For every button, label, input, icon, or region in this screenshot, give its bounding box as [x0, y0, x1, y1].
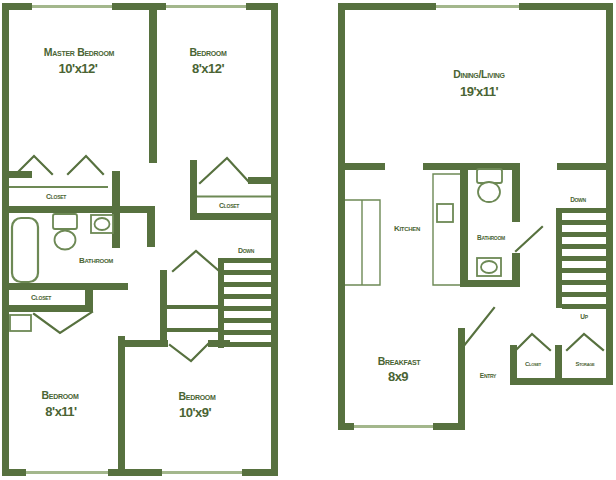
bedroom-2-dims: 8'x12' [192, 62, 224, 75]
bedroom-4-label: Bedroom [179, 391, 216, 402]
main-stairs-down-label: Down [570, 197, 586, 204]
hall-closet-shelf-box [10, 315, 31, 331]
sink-basin [95, 218, 110, 230]
bedroom-4-dims: 10'x9' [179, 406, 211, 419]
bedroom-3-dims: 8'x11' [45, 405, 76, 418]
toilet-bowl [478, 182, 500, 202]
sink-basin [481, 261, 497, 273]
upper-bathroom-fixtures [12, 214, 113, 282]
bedroom-3-label: Bedroom [42, 390, 79, 401]
breakfast-label: Breakfast [378, 356, 421, 367]
master-bedroom-label: Master Bedroom [44, 47, 114, 58]
upper-outer-walls [2, 3, 278, 476]
breakfast-dims: 8x9 [388, 370, 408, 383]
entry-label: Entry [480, 373, 496, 380]
dining-living-dims: 19'x11' [460, 85, 498, 98]
hall-closet-label: Closet [31, 294, 51, 301]
upper-stairs [218, 258, 271, 348]
floor-plan-canvas: Master Bedroom 10'x12' Bedroom 8'x12' Cl… [0, 0, 616, 480]
bedroom-2-label: Bedroom [190, 47, 227, 58]
upper-bathroom-label: Bathroom [79, 257, 113, 265]
toilet-bowl [55, 231, 76, 250]
main-bathroom-fixtures [477, 169, 502, 276]
entry-closet-label: Closet [525, 361, 541, 367]
kitchen-label: Kitchen [394, 225, 420, 233]
kitchen-appliance [437, 204, 453, 222]
storage-label: Storage [576, 361, 595, 367]
main-stairs-up-label: Up [580, 314, 587, 321]
upper-floor-plan [2, 3, 278, 476]
master-closet-label: Closet [46, 193, 66, 200]
bathtub [12, 218, 38, 282]
master-bedroom-dims: 10'x12' [59, 62, 98, 75]
toilet-tank [53, 214, 77, 229]
upper-stairs-down-label: Down [238, 247, 254, 254]
main-stairs [556, 208, 606, 309]
dining-living-label: Dining/Living [453, 69, 505, 80]
bedroom-2-closet-label: Closet [219, 202, 239, 209]
main-bathroom-label: Bathroom [477, 235, 505, 242]
toilet-tank [477, 169, 502, 183]
